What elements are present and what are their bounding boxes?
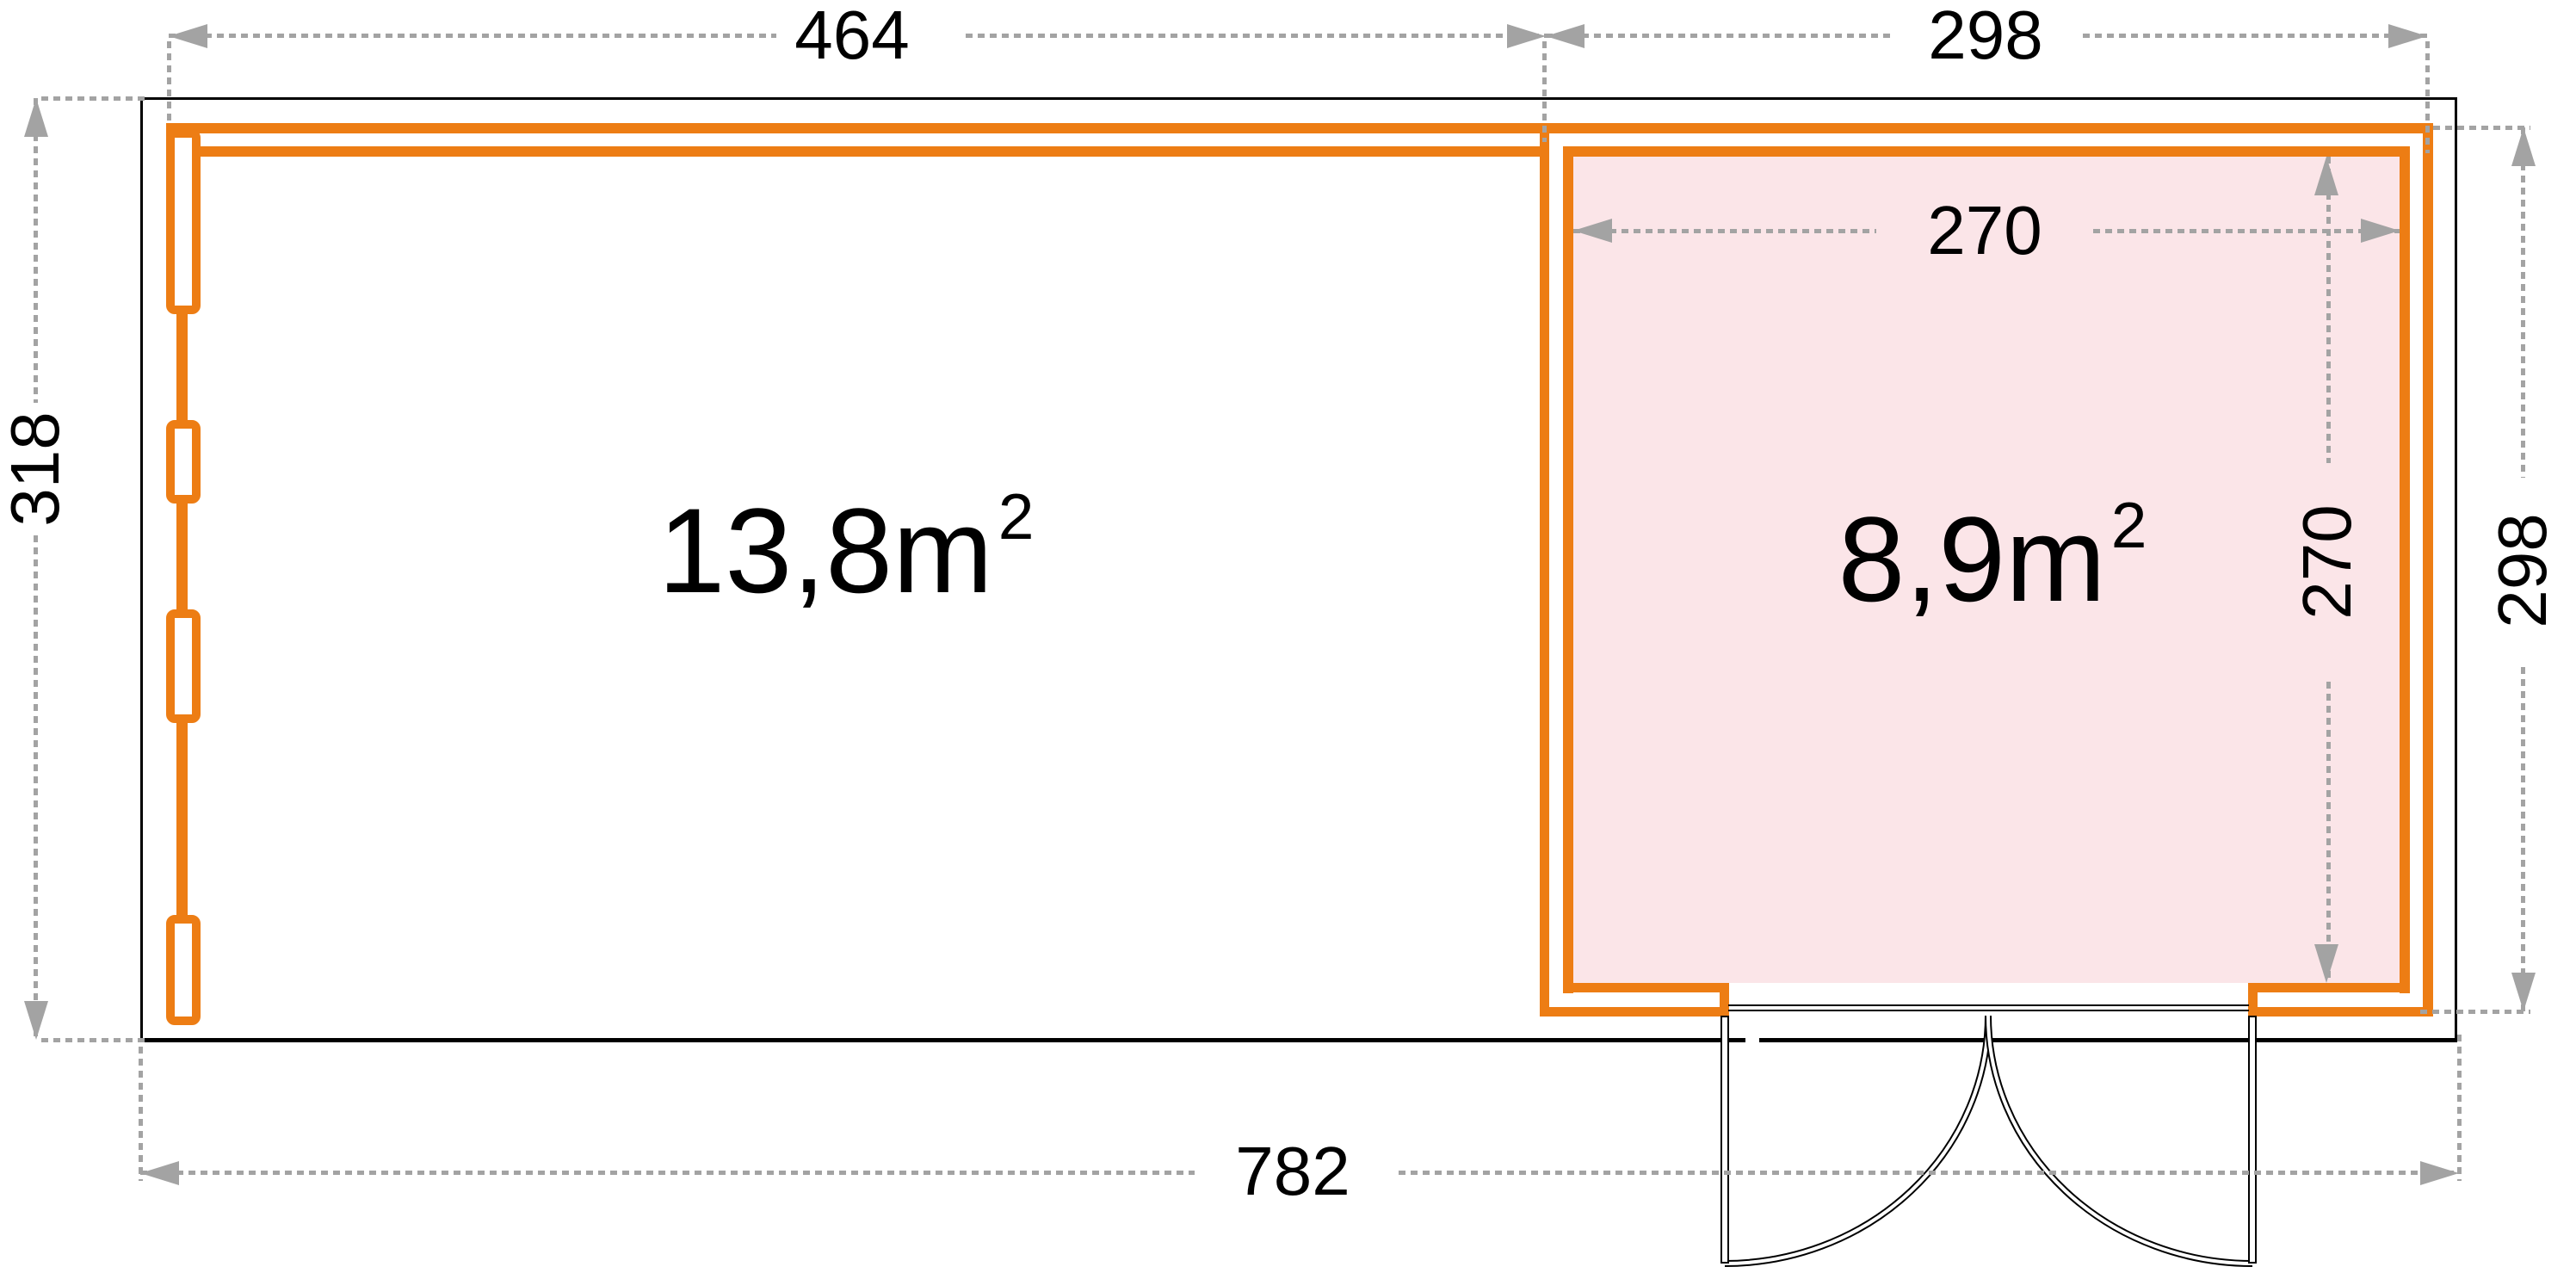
dim-arrow-464-left (169, 24, 207, 48)
dim-line-270h-b (2093, 229, 2400, 233)
dim-line-298right-a (2521, 127, 2525, 478)
wall-left-segment-2 (176, 499, 188, 615)
wall-top-inner-right-room (1563, 146, 2410, 157)
extension-line-bottom-right (2457, 1035, 2462, 1181)
dim-line-318-b (34, 535, 38, 1040)
dim-arrow-270h-right (2361, 219, 2400, 243)
dim-arrow-270v-up (2314, 157, 2338, 195)
wall-doorpost-cap-left (1720, 983, 1729, 1017)
dim-line-270v-a (2326, 157, 2331, 463)
dim-label-right-height: 298 (2488, 513, 2557, 627)
room-right-area-label: 8,9m2 (1838, 499, 2147, 620)
wall-top-inner-left-room (189, 146, 1549, 157)
wall-bottom-inner-right (2248, 983, 2410, 992)
dim-label-top-right-width: 298 (1928, 1, 2042, 70)
door-threshold-line-2 (1728, 1010, 2249, 1011)
floor-plan: 464 298 318 782 298 270 270 13,8m2 8,9m2 (0, 0, 2576, 1273)
wall-top-outer (166, 123, 2433, 133)
dim-line-464-a (169, 34, 776, 38)
dim-arrow-318-down (24, 1001, 48, 1040)
extension-line-top-divider (1542, 41, 1547, 142)
extension-line-top-left (167, 41, 171, 121)
door-swing-arc-right-inner (1988, 1016, 2252, 1264)
dim-arrow-318-up (24, 98, 48, 137)
dim-label-top-left-width: 464 (794, 1, 909, 70)
dim-line-298right-b (2521, 667, 2525, 1011)
dim-arrow-782-right (2420, 1161, 2459, 1185)
door-swing-arc-right-outer (1988, 1016, 2252, 1264)
wall-left-segment-1 (176, 310, 188, 426)
dim-line-298top-a (1546, 34, 1890, 38)
dim-arrow-782-left (140, 1161, 179, 1185)
dim-line-318-a (34, 98, 38, 403)
base-outline-bottom-left (140, 1038, 1745, 1042)
dim-line-270v-b (2326, 682, 2331, 983)
base-outline-top (140, 97, 2457, 100)
dim-label-left-height: 318 (1, 411, 70, 526)
dim-line-298top-b (2083, 34, 2427, 38)
base-outline-right (2455, 97, 2457, 1042)
wall-bottom-outer-right (2248, 1007, 2433, 1017)
wall-right-outer (2423, 123, 2433, 1017)
room-right-area-value: 8,9m (1838, 491, 2106, 627)
dim-arrow-298top-right (2388, 24, 2427, 48)
dim-arrow-298right-up (2511, 127, 2536, 166)
base-outline-left (140, 97, 143, 1042)
room-left-area-exponent: 2 (998, 480, 1035, 553)
dim-label-bottom-total-width: 782 (1235, 1137, 1350, 1206)
wall-doorpost-cap-right (2248, 983, 2258, 1017)
window-left-2 (166, 420, 201, 504)
wall-divider-right-line (1563, 146, 1573, 993)
dim-line-782-a (140, 1171, 1195, 1175)
wall-left-segment-3 (176, 719, 188, 921)
wall-divider-left-line (1540, 123, 1549, 1017)
dim-line-464-b (966, 34, 1546, 38)
dim-line-782-b (1399, 1171, 2459, 1175)
window-left-1 (166, 129, 201, 314)
door-leaf-left (1720, 1016, 1729, 1264)
wall-bottom-inner-left (1563, 983, 1728, 992)
dim-arrow-464-right (1507, 24, 1546, 48)
room-left-area-value: 13,8m (658, 483, 993, 618)
dim-arrow-270h-left (1573, 219, 1612, 243)
door-swing-arc-left-outer (1725, 1016, 1988, 1264)
dim-label-inner-room-width: 270 (1927, 196, 2042, 265)
window-left-4 (166, 915, 201, 1025)
dim-arrow-298right-down (2511, 973, 2536, 1011)
wall-bottom-outer-left (1540, 1007, 1729, 1017)
base-outline-bottom-right (1759, 1038, 2457, 1042)
door-leaf-right (2248, 1016, 2257, 1264)
door-swing-arc-left-inner (1725, 1016, 1988, 1264)
extension-line-left-top (41, 96, 148, 101)
room-right-area-exponent: 2 (2111, 489, 2147, 561)
extension-line-top-right (2425, 41, 2430, 153)
extension-line-left-bottom (41, 1038, 148, 1042)
dim-label-inner-room-height: 270 (2293, 504, 2362, 619)
room-left-area-label: 13,8m2 (658, 491, 1035, 611)
dim-arrow-298top-left (1546, 24, 1585, 48)
door-threshold-line-1 (1728, 1004, 2249, 1006)
dim-line-270h-a (1573, 229, 1876, 233)
window-left-3 (166, 609, 201, 723)
wall-right-inner (2400, 146, 2410, 993)
dim-arrow-270v-down (2314, 944, 2338, 983)
